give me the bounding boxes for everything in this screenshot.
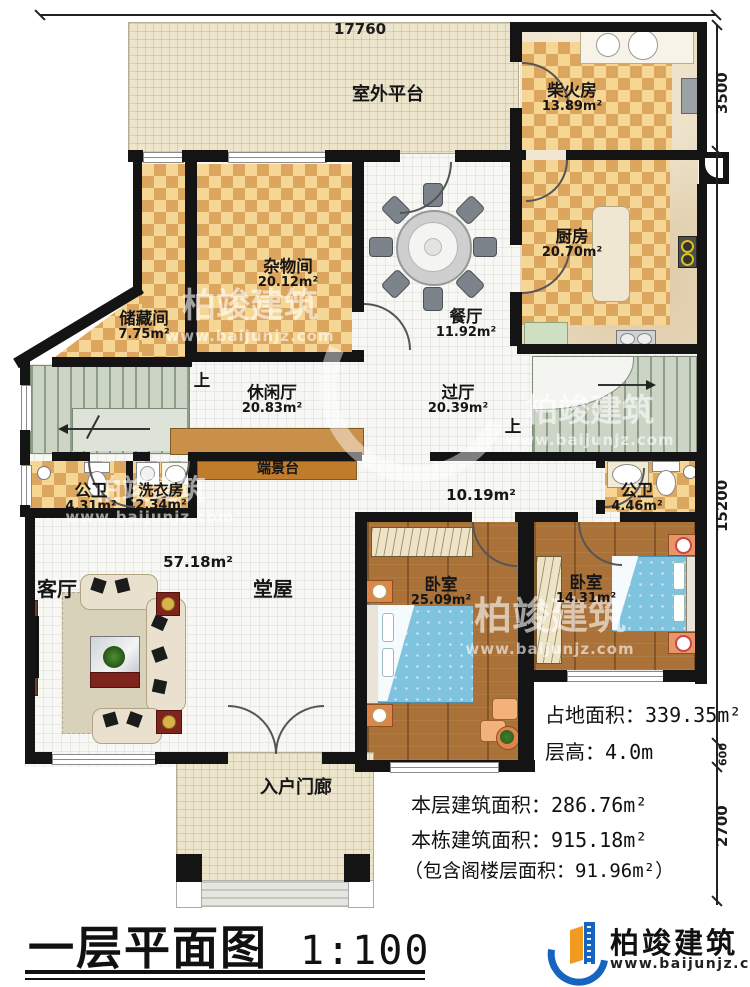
dimension-right-top: 3500 (713, 74, 731, 114)
room-label-leisure: 休闲厅 20.83m² (242, 384, 302, 417)
room-label-bedroom2: 卧室 14.31m² (556, 574, 616, 607)
bench-cushion (492, 698, 518, 720)
room-label-kitchen: 厨房 20.70m² (542, 228, 602, 261)
wardrobe (536, 556, 562, 664)
stat-attic-note: （包含阁楼层面积：91.96m²） (404, 856, 674, 883)
wall (663, 670, 707, 682)
room-label-tangwu: 堂屋 (253, 578, 293, 600)
wall (128, 150, 143, 162)
window (228, 152, 327, 163)
dimension-right-bottom: 2700 (713, 807, 731, 847)
window (567, 671, 665, 682)
wall (133, 158, 142, 295)
dining-chair (369, 237, 393, 257)
window (143, 152, 184, 163)
stat-total-area: 本栋建筑面积：915.18m² (411, 824, 647, 853)
brand-url[interactable]: www.baijunjz.com (610, 956, 750, 972)
kitchen-cabinet (524, 322, 568, 345)
sofa-pillow (152, 679, 167, 694)
porch-pillar (344, 854, 370, 882)
wall (697, 354, 707, 458)
title-underline (25, 970, 425, 974)
lamp-icon (371, 707, 388, 724)
wall (197, 452, 362, 461)
stat-height: 层高：4.0m (545, 736, 653, 765)
porch-pillar (176, 854, 202, 882)
logo-building-blue (584, 922, 595, 964)
wall (517, 344, 707, 354)
room-label-platform: 室外平台 (352, 85, 424, 105)
room-label-firewood: 柴火房 13.89m² (542, 82, 602, 115)
room-label-sundry: 杂物间 20.12m² (258, 258, 318, 291)
dimension-top-width: 17760 (320, 20, 400, 38)
console-label: 端景台 (257, 462, 299, 478)
pot (596, 33, 620, 57)
stairs-up-label: 上 (194, 372, 211, 390)
wall (510, 292, 522, 346)
wall (52, 357, 192, 367)
window (390, 762, 499, 773)
wall (352, 158, 364, 312)
wall (518, 512, 534, 770)
wall (510, 22, 707, 32)
title-text: 一层平面图 (28, 921, 268, 975)
living-area-value: 57.18m² (163, 554, 233, 571)
window (21, 465, 32, 507)
stair-arrowhead (58, 424, 68, 434)
porch-steps (200, 880, 350, 907)
porch-step-rail (348, 880, 374, 908)
wardrobe (371, 527, 473, 557)
window (21, 385, 32, 432)
wall (52, 452, 90, 461)
stair-arrow-line (66, 428, 150, 430)
wall (25, 515, 35, 764)
dimension-line-top (40, 14, 716, 16)
wall (510, 32, 522, 62)
wall (596, 500, 605, 514)
dining-table-center (424, 238, 442, 256)
stair-arrow-line (598, 384, 648, 386)
floor-plan: 柏竣建筑 www.baijunjz.com 柏竣建筑 www.baijunjz.… (0, 0, 750, 987)
room-label-living: 客厅 (37, 578, 77, 600)
room-label-dining: 餐厅 11.92m² (436, 308, 496, 341)
pillow (673, 594, 685, 622)
room-label-bath-left: 公卫 4.31m² (65, 482, 116, 515)
wall (322, 752, 362, 764)
dining-chair (473, 237, 497, 257)
pillow (382, 613, 394, 642)
page-title: 一层平面图 1:100 (28, 912, 430, 978)
lamp-icon (675, 635, 692, 652)
tangwu-area-value: 10.19m² (446, 487, 516, 504)
pot (628, 30, 658, 60)
sofa (92, 708, 162, 744)
window (52, 754, 157, 765)
title-underline-thin (25, 978, 425, 980)
plant-icon (103, 646, 125, 668)
wall (20, 430, 30, 465)
wall (596, 458, 605, 468)
plant-icon (500, 730, 514, 744)
wall (515, 512, 578, 522)
room-label-laundry: 洗衣房 2.34m² (135, 482, 186, 513)
wall (185, 158, 197, 362)
wall (155, 752, 228, 764)
lamp-icon (371, 583, 388, 600)
room-label-storage: 储藏间 7.75m² (118, 310, 169, 343)
stat-footprint: 占地面积：339.35m² (545, 699, 741, 728)
room-label-bedroom1: 卧室 25.09m² (411, 576, 471, 609)
room-label-porch: 入户门廊 (260, 778, 332, 798)
ceiling-lamp-icon (37, 466, 51, 480)
pillow (673, 562, 685, 590)
brand-logo[interactable] (548, 916, 604, 978)
wall (695, 458, 707, 684)
wall (566, 150, 707, 160)
wall (697, 22, 707, 154)
wall (25, 752, 52, 764)
title-scale: 1:100 (300, 928, 430, 974)
logo-building-orange (570, 926, 583, 964)
stairs-up-label: 上 (505, 418, 522, 436)
side-table-plate (162, 715, 176, 729)
room-label-bath-right: 公卫 4.46m² (611, 482, 662, 515)
pillow (382, 648, 394, 677)
lamp-icon (675, 537, 692, 554)
stat-floor-area: 本层建筑面积：286.76m² (411, 789, 647, 818)
room-label-hall: 过厅 20.39m² (428, 384, 488, 417)
burner (681, 240, 694, 253)
wall (133, 452, 150, 461)
coffee-table-shelf (90, 672, 140, 688)
stair-arrowhead (646, 380, 656, 390)
wall (455, 150, 517, 162)
wall (355, 512, 472, 522)
wall (510, 160, 522, 245)
dimension-right-middle: 15200 (713, 482, 731, 532)
porch-step-rail (176, 880, 202, 908)
wall (697, 184, 707, 354)
wall (355, 512, 367, 772)
room-platform-floor (128, 22, 519, 154)
dimension-right-low: 600 (717, 740, 730, 770)
firewood-stove (681, 78, 698, 114)
wall (325, 150, 400, 162)
wall (182, 150, 228, 162)
dimension-line-right (716, 25, 718, 905)
side-table-plate (161, 597, 175, 611)
wall (510, 108, 522, 154)
burner (681, 253, 694, 266)
